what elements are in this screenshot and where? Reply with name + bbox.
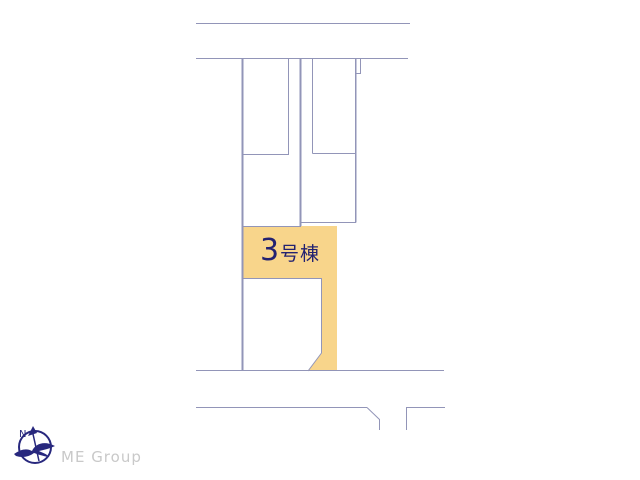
- road-bottom-left-chamfer: [367, 408, 380, 431]
- compass-north-label: N: [19, 429, 26, 440]
- brand-text: ME Group: [61, 448, 142, 466]
- road-bottom-right-corner: [407, 408, 446, 431]
- boundary-notch: [356, 59, 362, 74]
- compass-icon: N: [13, 423, 61, 471]
- plot-number: 3: [260, 233, 280, 268]
- site-plan-page: 3号棟 N ME Group: [0, 0, 640, 480]
- plot-3-label: 3号棟: [243, 233, 337, 279]
- building-footprint-outline: [243, 279, 322, 372]
- plot-suffix: 号棟: [280, 243, 320, 265]
